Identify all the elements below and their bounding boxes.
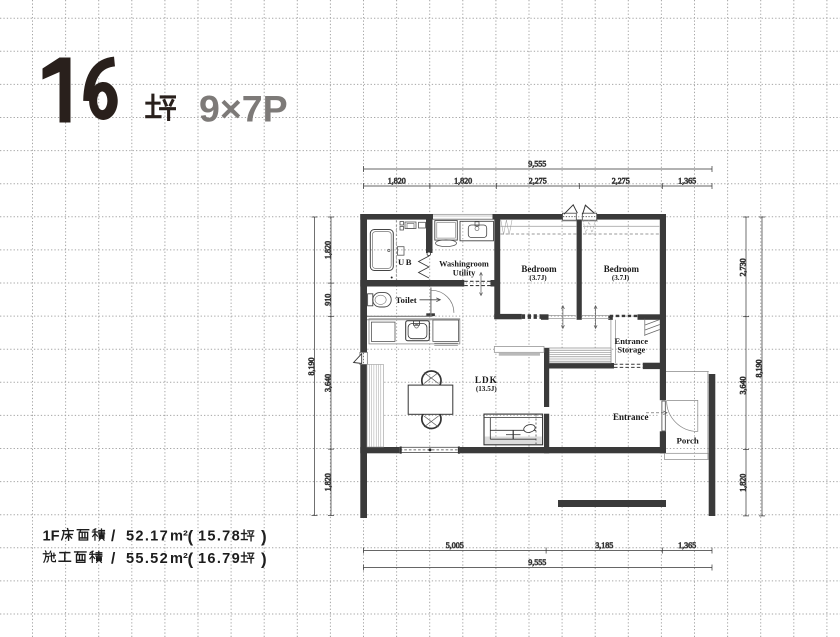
svg-text:Utility: Utility: [453, 269, 476, 278]
svg-text:9,555: 9,555: [528, 159, 546, 168]
svg-text:2,275: 2,275: [612, 176, 630, 185]
svg-text:52.17: 52.17: [126, 529, 169, 545]
svg-text:Bedroom: Bedroom: [604, 264, 640, 274]
svg-text:2,730: 2,730: [738, 258, 747, 276]
svg-text:9×7P: 9×7P: [199, 88, 288, 130]
svg-text:3,185: 3,185: [595, 541, 613, 550]
svg-text:/: /: [111, 528, 116, 545]
svg-text:1,820: 1,820: [388, 176, 406, 185]
svg-text:1,820: 1,820: [323, 241, 332, 259]
svg-text:1,820: 1,820: [454, 176, 472, 185]
svg-text:): ): [261, 549, 267, 568]
svg-text:(13.5J): (13.5J): [476, 385, 498, 393]
svg-text:16.79: 16.79: [198, 551, 241, 567]
svg-text:9,555: 9,555: [528, 558, 546, 567]
svg-text:Porch: Porch: [677, 436, 699, 446]
svg-text:Entrance: Entrance: [613, 412, 649, 422]
svg-text:2,275: 2,275: [529, 176, 547, 185]
svg-text:/: /: [111, 550, 116, 567]
svg-text:Toilet: Toilet: [396, 295, 417, 305]
svg-text:1,820: 1,820: [323, 473, 332, 491]
svg-text:55.52: 55.52: [126, 551, 169, 567]
svg-text:(: (: [188, 549, 194, 568]
svg-text:UB: UB: [398, 257, 413, 267]
svg-text:5,005: 5,005: [446, 541, 464, 550]
svg-text:Bedroom: Bedroom: [521, 264, 557, 274]
svg-text:3,640: 3,640: [323, 374, 332, 392]
svg-text:(3.7J): (3.7J): [612, 274, 630, 282]
svg-text:1,820: 1,820: [738, 474, 747, 492]
svg-text:1,365: 1,365: [678, 176, 696, 185]
svg-text:m²: m²: [170, 529, 188, 545]
svg-text:(: (: [188, 527, 194, 546]
svg-text:LDK: LDK: [475, 375, 498, 385]
svg-text:3,640: 3,640: [738, 377, 747, 395]
svg-text:): ): [261, 527, 267, 546]
svg-text:1,365: 1,365: [678, 541, 696, 550]
svg-text:m²: m²: [170, 551, 188, 567]
svg-text:Storage: Storage: [617, 345, 645, 355]
svg-text:8,190: 8,190: [754, 360, 763, 378]
svg-text:1F: 1F: [43, 529, 60, 545]
svg-text:910: 910: [323, 294, 332, 306]
svg-text:15.78: 15.78: [198, 529, 241, 545]
svg-text:8,190: 8,190: [307, 358, 316, 376]
svg-text:(3.7J): (3.7J): [529, 274, 547, 282]
svg-text:Washingroom: Washingroom: [439, 260, 489, 269]
